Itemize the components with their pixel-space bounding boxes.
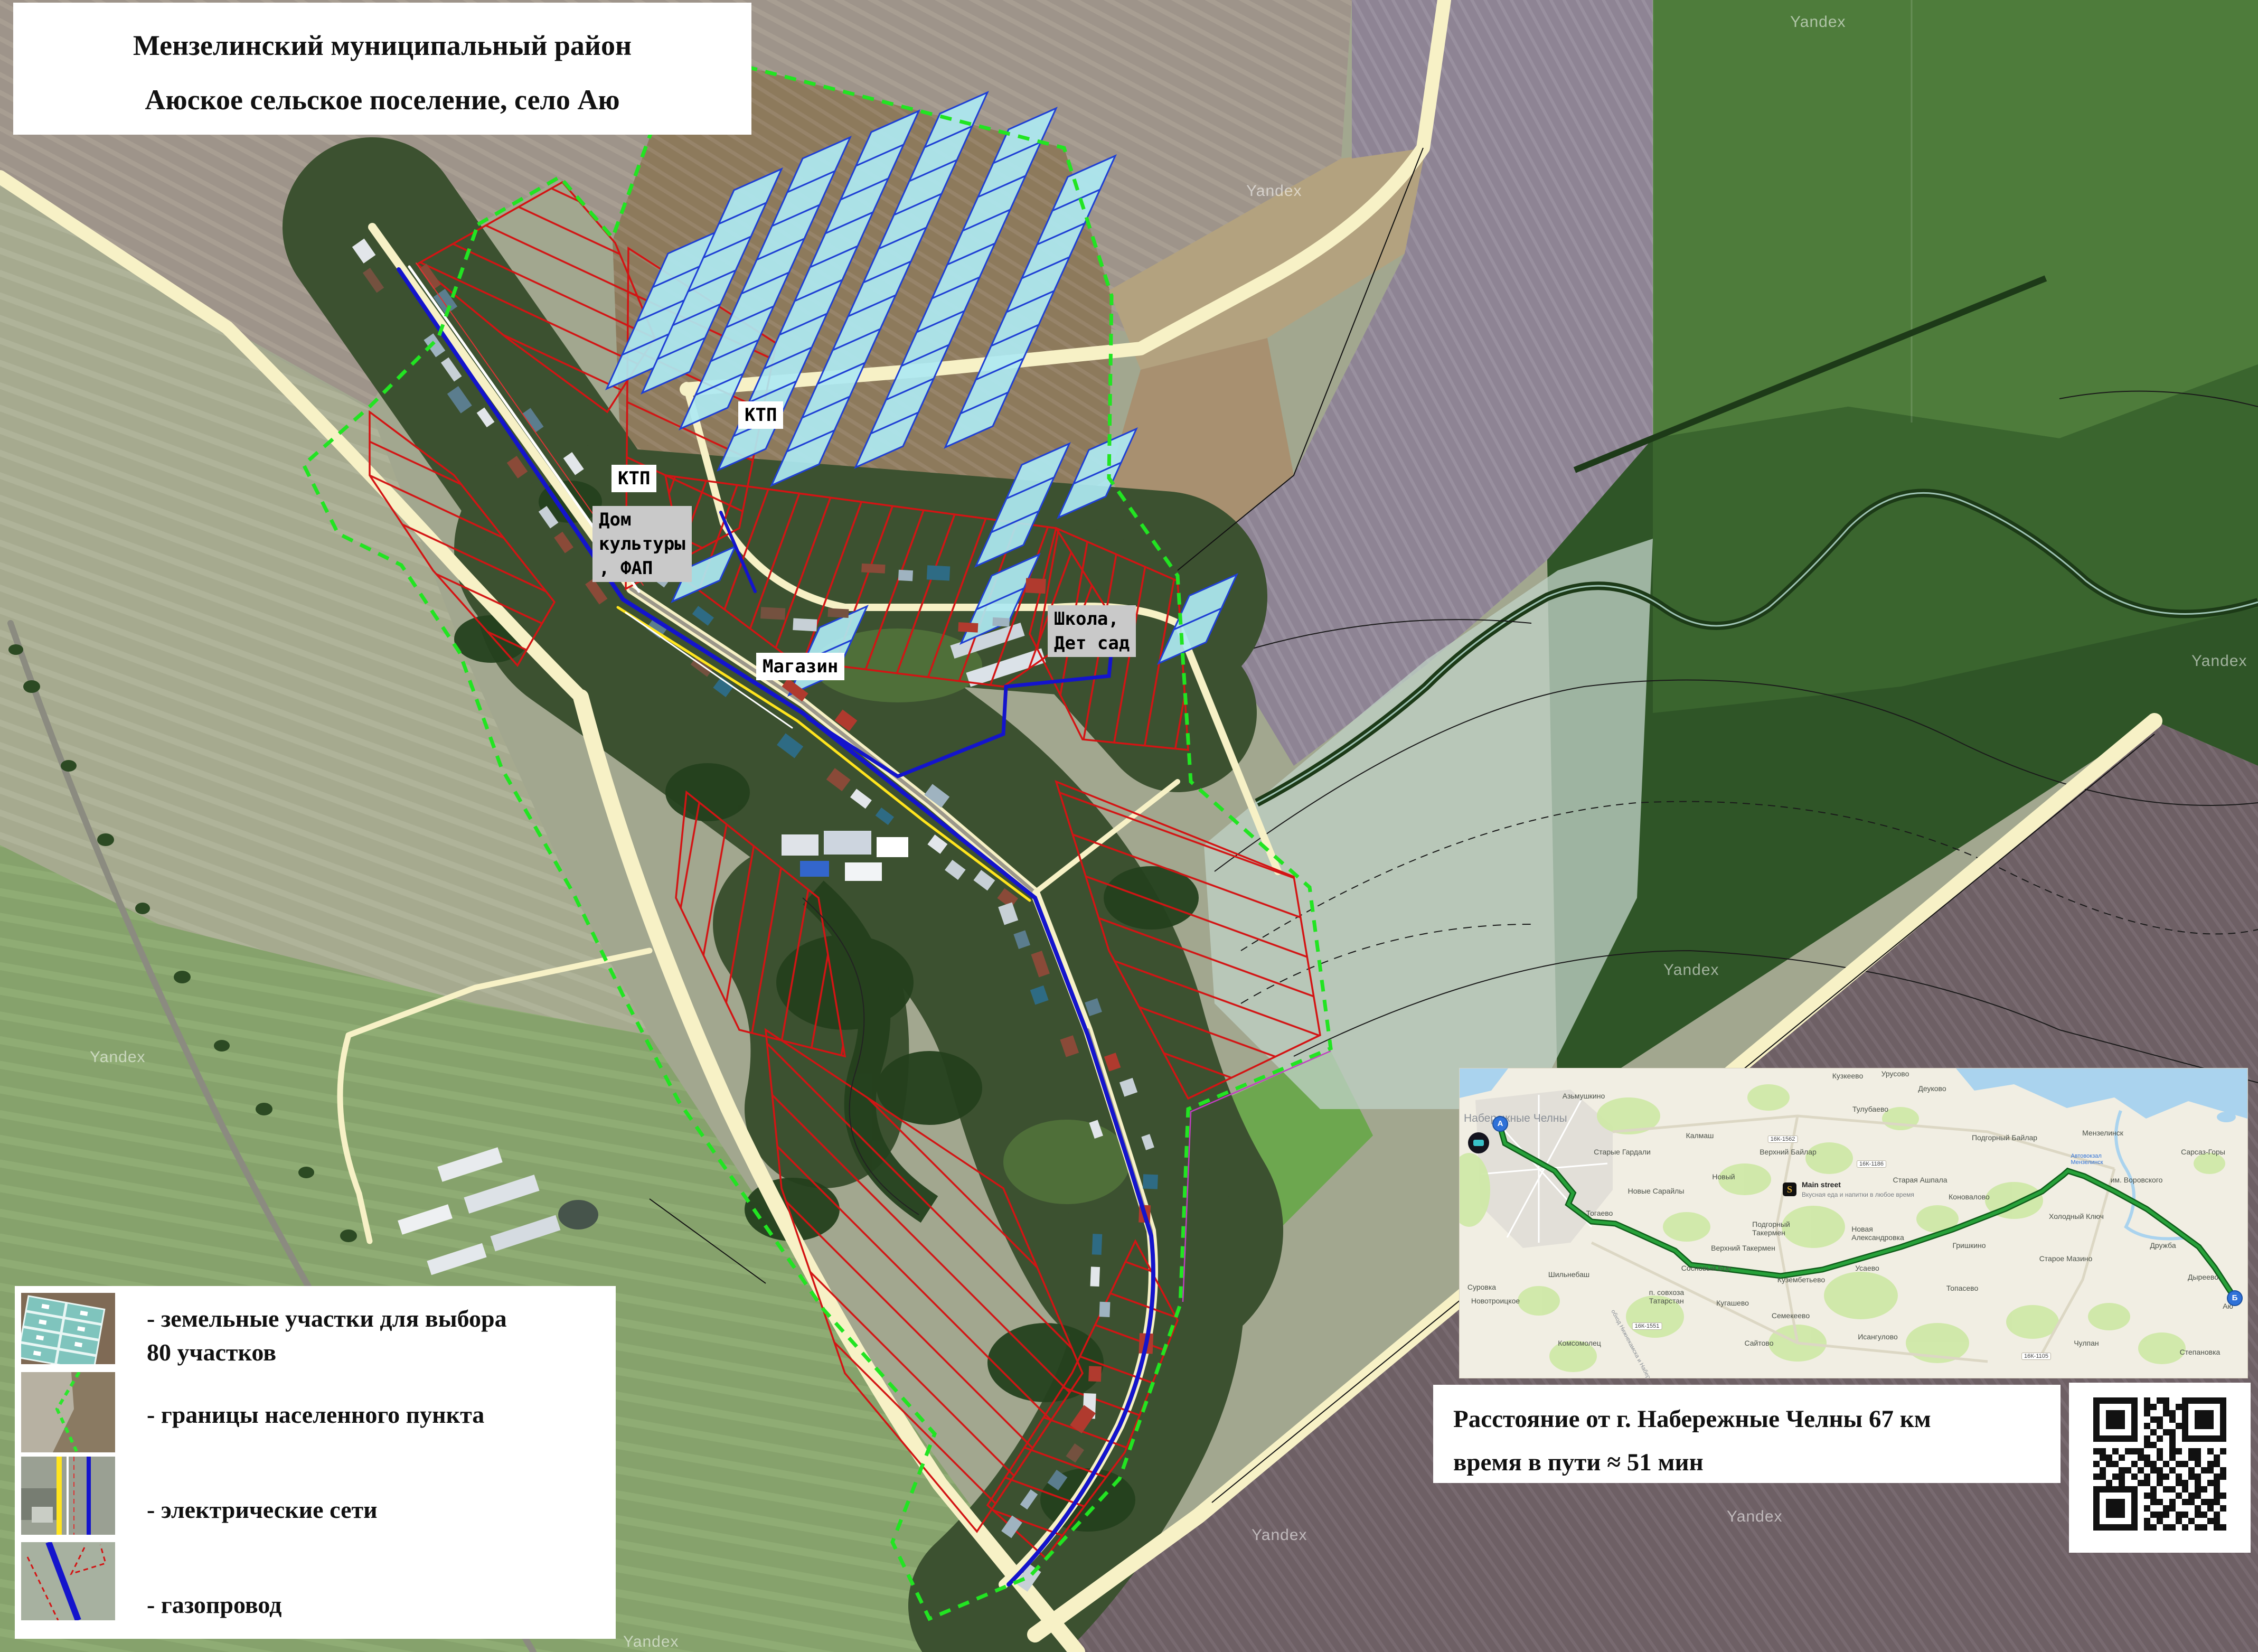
legend-swatch-gas: [21, 1542, 115, 1620]
house: [927, 565, 951, 580]
inset-town-label: Тогаево: [1586, 1209, 1613, 1217]
inset-town-label: Старая Ашпала: [1893, 1176, 1947, 1184]
distance-line-1: Расстояние от г. Набережные Челны 67 км: [1453, 1397, 2061, 1441]
qr-code: [2093, 1397, 2226, 1531]
inset-town-label: Кузембетьево: [1777, 1275, 1825, 1284]
yandex-watermark: Yandex: [623, 1633, 679, 1651]
main-street-icon: S: [1783, 1182, 1796, 1196]
inset-town-label: Старое Мазино: [2039, 1254, 2093, 1263]
legend-item-gas: - газопровод: [147, 1588, 606, 1622]
house: [861, 564, 885, 574]
inset-town-label: Автовокзал Мензелинск: [2071, 1153, 2103, 1166]
house: [1090, 1266, 1100, 1287]
inset-town-label: Исангулово: [1858, 1332, 1898, 1341]
inset-town-label: Новый: [1712, 1172, 1735, 1181]
main-street-subtitle: Вкусная еда и напитки в любое время: [1802, 1191, 1914, 1198]
main-street-title: Main street: [1802, 1180, 1841, 1189]
inset-town-label: Суровка: [1467, 1283, 1496, 1291]
yandex-watermark: Yandex: [2191, 652, 2247, 670]
label-shop: Магазин: [756, 653, 844, 680]
inset-town-label: Степановка: [2180, 1348, 2221, 1356]
route-inset-map: Набережные ЧелныАзьмушкиноКузкеевоУрусов…: [1459, 1068, 2248, 1378]
inset-town-label: Верхний Байлар: [1760, 1148, 1817, 1156]
inset-town-label: Калмаш: [1686, 1131, 1714, 1140]
inset-town-label: Новотроицкое: [1471, 1297, 1520, 1305]
inset-town-label: Деуково: [1918, 1084, 1946, 1093]
inset-town-label: Гришкино: [1952, 1241, 1986, 1250]
bus-stop-icon: [1468, 1132, 1489, 1153]
house: [1099, 1302, 1111, 1317]
label-ktp-2: КТП: [611, 465, 656, 492]
title-box: Мензелинский муниципальный район Аюское …: [13, 3, 751, 135]
house: [760, 607, 785, 619]
inset-town-label: 16К-1105: [2021, 1353, 2051, 1360]
inset-town-label: Подгорный Такермен: [1752, 1220, 1790, 1237]
yandex-watermark: Yandex: [1790, 13, 1846, 31]
inset-town-label: Коновалово: [1949, 1193, 1990, 1201]
inset-town-label: Новая Александровка: [1851, 1225, 1904, 1242]
distance-box: Расстояние от г. Набережные Челны 67 км …: [1433, 1385, 2061, 1483]
inset-town-label: Топасево: [1946, 1284, 1978, 1292]
inset-town-label: Кугашево: [1716, 1299, 1749, 1307]
legend-swatch-electric: [21, 1457, 115, 1535]
inset-town-label: Верхний Такермен: [1711, 1244, 1775, 1252]
inset-town-label: Семекеево: [1772, 1311, 1810, 1320]
yandex-watermark: Yandex: [1727, 1508, 1783, 1526]
route-marker-b: Б: [2227, 1290, 2243, 1306]
inset-town-label: Новые Сарайлы: [1628, 1187, 1685, 1195]
yandex-watermark: Yandex: [1246, 182, 1302, 200]
inset-town-label: Холодный Ключ: [2049, 1212, 2104, 1221]
inset-town-label: Сарсаз-Горы: [2181, 1148, 2225, 1156]
yandex-watermark: Yandex: [1663, 961, 1719, 979]
label-ktp-1: КТП: [738, 401, 783, 429]
yandex-watermark: Yandex: [90, 1048, 146, 1066]
house: [1092, 1234, 1102, 1255]
legend-item-parcels: - земельные участки для выбора 80 участк…: [147, 1302, 606, 1369]
inset-town-label: Старые Гардали: [1594, 1148, 1651, 1156]
house: [793, 618, 817, 631]
legend: - земельные участки для выбора 80 участк…: [15, 1286, 616, 1639]
house: [1143, 1174, 1158, 1189]
inset-town-label: Сосновый Бор: [1681, 1264, 1731, 1272]
inset-town-label: Азьмушкино: [1563, 1092, 1605, 1100]
inset-town-label: Комсомолец: [1558, 1339, 1601, 1347]
inset-town-label: Сайтово: [1745, 1339, 1774, 1347]
inset-town-label: Мензелинск: [2082, 1129, 2123, 1137]
house: [1088, 1366, 1102, 1382]
inset-town-label: Тулубаево: [1852, 1105, 1888, 1113]
house: [992, 617, 1010, 627]
inset-town-label: Дружба: [2150, 1241, 2176, 1250]
label-house-of-culture: Дом культуры , ФАП: [592, 506, 692, 582]
inset-town-label: 16К-1562: [1768, 1135, 1798, 1143]
title-line-1: Мензелинский муниципальный район: [13, 18, 751, 73]
house: [958, 622, 978, 633]
yandex-watermark: Yandex: [634, 4, 690, 22]
inset-town-label: Дыреево: [2188, 1273, 2218, 1281]
legend-item-electric: - электрические сети: [147, 1493, 606, 1527]
inset-town-label: Подгорный Байлар: [1972, 1133, 2037, 1142]
house: [827, 608, 849, 618]
legend-swatch-boundary: [21, 1372, 115, 1452]
inset-town-label: п. совхоза Татарстан: [1649, 1288, 1684, 1305]
inset-town-label: Шильнебаш: [1548, 1270, 1589, 1279]
house: [1025, 578, 1046, 594]
poster-canvas: Мензелинский муниципальный район Аюское …: [0, 0, 2258, 1652]
inset-town-label: Кузкеево: [1832, 1072, 1864, 1080]
label-school: Школа, Дет сад: [1048, 605, 1136, 657]
inset-town-label: 16К-1186: [1857, 1160, 1886, 1168]
route-marker-a: А: [1492, 1116, 1508, 1132]
distance-line-2: время в пути ≈ 51 мин: [1453, 1441, 2061, 1484]
title-line-2: Аюское сельское поселение, село Аю: [13, 73, 751, 127]
legend-swatch-parcels: [21, 1293, 115, 1364]
inset-town-label: Набережные Челны: [1464, 1112, 1567, 1125]
yandex-watermark: Yandex: [1252, 1526, 1307, 1544]
house: [898, 570, 913, 581]
qr-code-panel: [2069, 1383, 2251, 1553]
inset-town-label: им. Воровского: [2111, 1176, 2163, 1184]
legend-item-boundary: - границы населенного пункта: [147, 1398, 606, 1432]
route-map-canvas: [1460, 1068, 2247, 1378]
inset-town-label: 16К-1551: [1632, 1322, 1662, 1330]
inset-town-label: Урусово: [1881, 1069, 1909, 1078]
inset-town-label: Чулпан: [2074, 1339, 2099, 1347]
inset-town-label: Усаево: [1855, 1264, 1879, 1272]
